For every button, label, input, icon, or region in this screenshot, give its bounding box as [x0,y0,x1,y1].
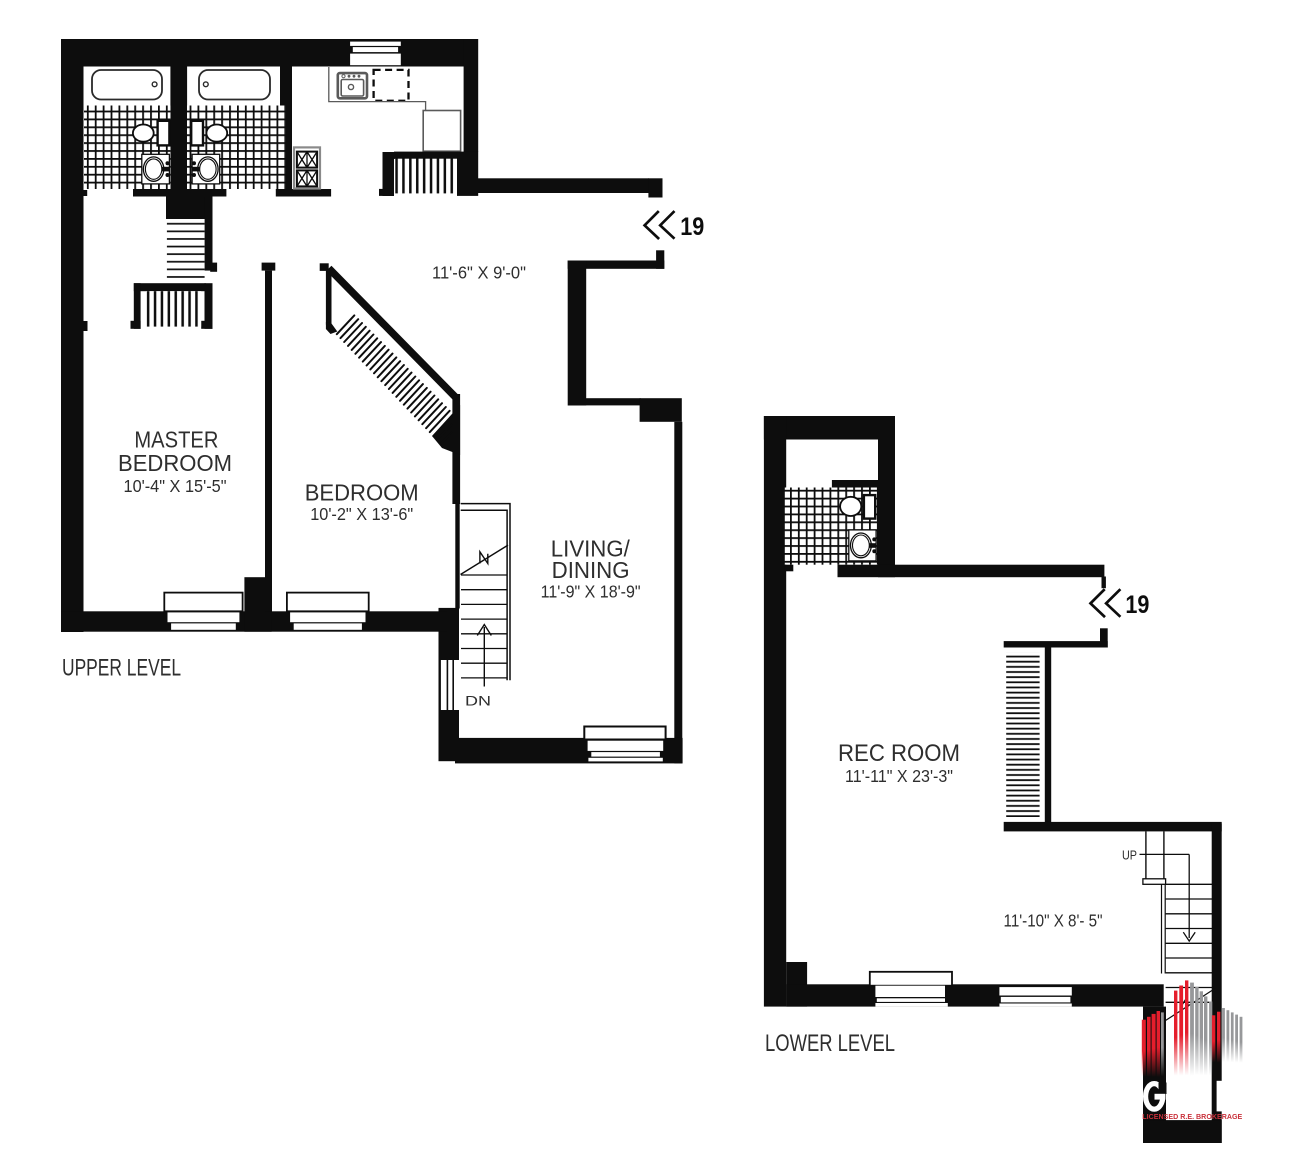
svg-text:DINING: DINING [552,557,630,583]
svg-text:LOWER LEVEL: LOWER LEVEL [765,1030,895,1057]
svg-text:19: 19 [680,213,704,241]
svg-text:19: 19 [1125,591,1149,619]
svg-text:11'-11" X 23'-3": 11'-11" X 23'-3" [845,766,953,786]
svg-text:LICENSED R.E. BROKERAGE: LICENSED R.E. BROKERAGE [1142,1114,1242,1121]
svg-text:BEDROOM: BEDROOM [118,450,232,476]
svg-text:11'-9" X 18'-9": 11'-9" X 18'-9" [541,582,641,602]
svg-text:11'-6" X 9'-0": 11'-6" X 9'-0" [432,263,526,283]
svg-text:BEDROOM: BEDROOM [305,479,419,505]
svg-text:REC ROOM: REC ROOM [838,740,960,767]
svg-text:DN: DN [465,693,491,709]
svg-text:10'-4" X 15'-5": 10'-4" X 15'-5" [124,476,227,496]
svg-text:UPPER LEVEL: UPPER LEVEL [62,655,181,682]
svg-text:MASTER: MASTER [134,427,218,453]
svg-text:11'-10" X 8'- 5": 11'-10" X 8'- 5" [1004,911,1103,931]
svg-text:10'-2" X 13'-6": 10'-2" X 13'-6" [310,504,413,524]
svg-text:UP: UP [1122,849,1137,863]
